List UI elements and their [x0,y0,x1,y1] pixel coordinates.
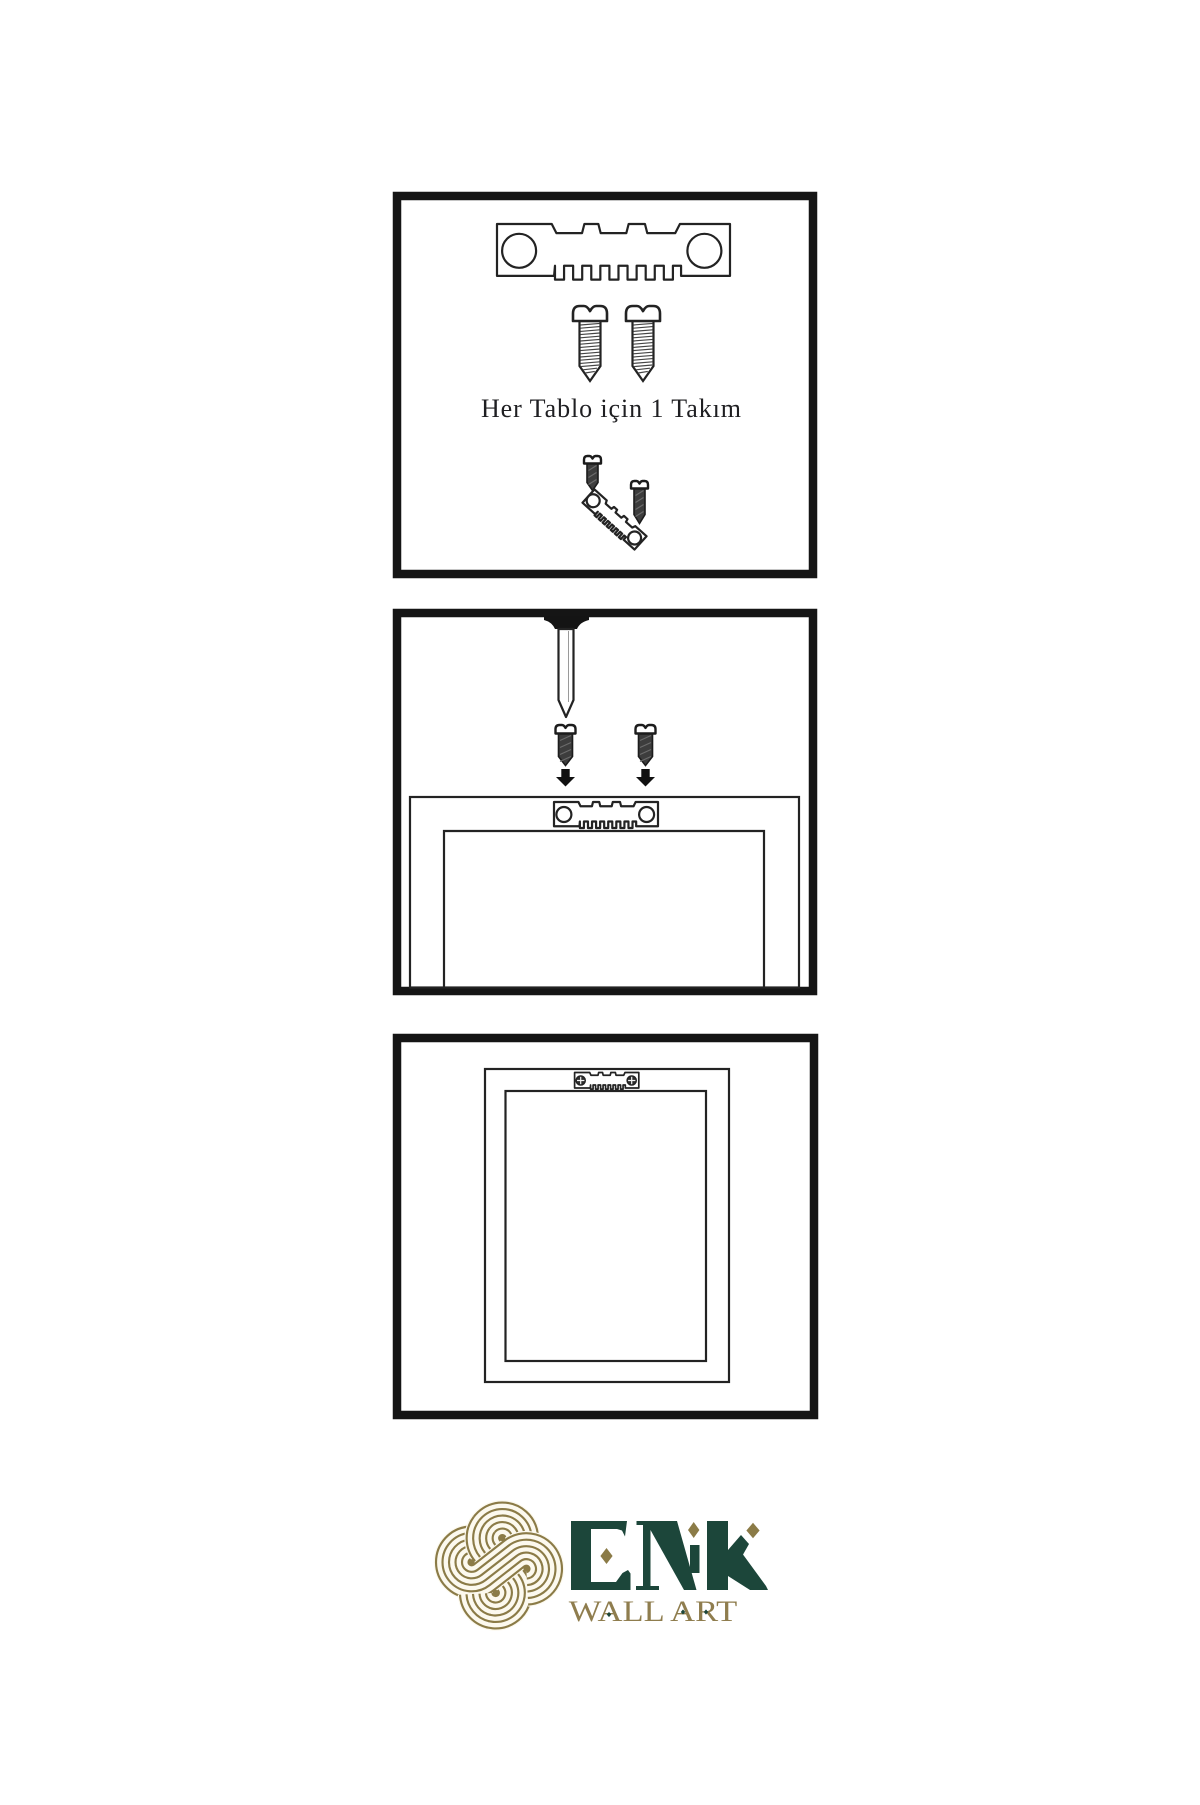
svg-text:WALL ART: WALL ART [569,1595,738,1628]
svg-text:Her Tablo için 1 Takım: Her Tablo için 1 Takım [481,394,741,423]
